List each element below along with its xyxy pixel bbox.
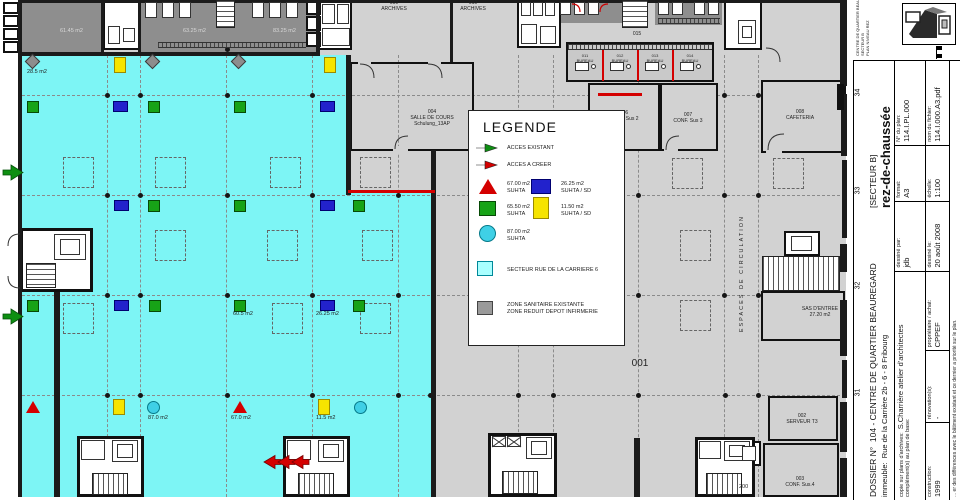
logo-zone: CENTRE DE QUARTIER BEAUREGARD - FRIBOURG… — [853, 0, 960, 60]
area-label: 67.0 m2 — [231, 415, 251, 421]
legend-item-label: SECTEUR RUE DE LA CARRIERE 6 — [507, 267, 598, 274]
room-label: SAS D'ENTREE27.20 m2 — [796, 307, 844, 319]
marker-green — [234, 200, 246, 212]
marker-green — [27, 300, 39, 312]
access-existing-arrow-icon — [3, 165, 23, 324]
title-block-footnote: ... er des différences avec le bâtiment … — [950, 61, 960, 500]
marker-green — [149, 300, 161, 312]
red-door-mark — [572, 4, 580, 12]
legend-item-label: ACCES EXISTANT — [507, 145, 554, 152]
marker-yellow — [318, 399, 330, 415]
square-cyan-icon — [477, 261, 493, 276]
red-door-mark — [600, 4, 608, 12]
room-label: 003CONF. Sus.4 — [778, 477, 822, 489]
room-label: 012BUREAU — [604, 54, 636, 63]
immeuble-label: immeuble: — [880, 462, 889, 497]
immeuble-value: Rue de la Carrière 2b - 6 - 8 Fribourg — [880, 335, 889, 458]
marker-triangle — [233, 401, 247, 413]
title-block: DOSSIER N° 104 - CENTRE DE QUARTIER BEAU… — [853, 60, 960, 500]
marker-blue — [114, 300, 129, 311]
legend-item-label: 87.00 m2SUHTA — [507, 229, 530, 242]
plan-no-value: 114.I.PL.000 — [902, 64, 911, 142]
room-label: 011BUREAU — [569, 54, 601, 63]
grid-number: 33 — [855, 183, 862, 199]
proprietaire-value: CPPEF — [933, 275, 942, 348]
marker-triangle — [26, 401, 40, 413]
dossier-label: DOSSIER N° — [868, 447, 878, 497]
marker-green — [234, 101, 246, 113]
room-label: 010ARCHIVES — [453, 1, 493, 13]
secteur-tag: [SECTEUR B] — [868, 64, 878, 208]
square-gray-icon — [477, 301, 493, 315]
fichier-value: 114.I.000.A3.pdf — [933, 64, 942, 142]
area-label: 63.25 m2 — [183, 28, 206, 34]
area-label: 83.25 m2 — [273, 28, 296, 34]
room-label: 013BUREAU — [639, 54, 671, 63]
legend-title: LEGENDE — [483, 119, 557, 135]
grid-number: 32 — [855, 278, 862, 294]
room-label: 004SALLE DE COURSSchulung_13AP — [404, 110, 460, 127]
echelle-value: 1:100 — [933, 149, 942, 198]
legend-item-label: ZONE SANITAIRE EXISTANTEZONE REDUIT DEPO… — [507, 302, 598, 315]
area-label: 200 — [739, 484, 748, 490]
dessine-le-value: 20 août 2008 — [933, 205, 942, 268]
square-blue-icon — [531, 179, 551, 194]
area-label: 11.5 m2 — [316, 415, 335, 421]
circle-cyan-icon — [479, 225, 496, 242]
marker-green — [353, 300, 365, 312]
room-label: 009ARCHIVES — [374, 1, 414, 13]
area-label: 61.45 m2 — [60, 28, 83, 34]
square-yellow-icon — [533, 197, 549, 219]
marker-circle — [354, 401, 367, 414]
legend-panel: LEGENDE ACCES EXISTANTACCES A CREER67.00… — [468, 110, 625, 346]
dessine-par-value: jdb — [902, 205, 911, 268]
area-label: 60.5 m2 — [233, 311, 253, 317]
copie-value: S.Charrière atelier d'architectes — [896, 324, 905, 429]
room-label: ESPACES DE CIRCULATION — [739, 236, 745, 332]
arrow-red-icon — [475, 158, 499, 177]
area-label: 28.5 m2 — [27, 69, 47, 75]
square-green-icon — [479, 201, 496, 216]
marker-blue — [114, 200, 129, 211]
triangle-red-icon — [479, 179, 497, 194]
legend-item-label: 65.50 m2SUHTA — [507, 204, 530, 217]
area-label: 26.25 m2 — [316, 311, 339, 317]
room-label: 002SERVEUR T3 — [780, 414, 824, 426]
architect-logo — [902, 3, 956, 45]
renovation-value: - — [933, 354, 942, 419]
room-label: 007CONF. Sus 3 — [666, 113, 710, 125]
complement-label: complément(s) au plan de base: — [905, 275, 911, 497]
legend-item-label: ACCES A CREER — [507, 162, 551, 169]
marker-blue — [113, 101, 128, 112]
marker-green — [27, 101, 39, 113]
floor-plan-sheet: LEGENDE ACCES EXISTANTACCES A CREER67.00… — [0, 0, 960, 500]
scale-ruler-icon — [936, 46, 942, 59]
room-label: 015 — [627, 32, 647, 38]
room-label: 001 — [626, 358, 654, 370]
marker-yellow — [324, 57, 336, 73]
legend-item-label: 11.50 m2SUHTA / SD — [561, 204, 591, 217]
marker-green — [148, 101, 160, 113]
floor-name: rez-de-chaussée — [878, 64, 893, 208]
grid-number: 34 — [855, 85, 862, 101]
marker-yellow — [113, 399, 125, 415]
marker-circle — [147, 401, 160, 414]
room-label: 008CAFETERIA — [778, 110, 822, 122]
format-value: A3 — [902, 149, 911, 198]
grid-number: 31 — [855, 385, 862, 401]
construction-value: 1999 — [933, 426, 942, 497]
marker-green — [353, 200, 365, 212]
access-to-create-arrow-icon — [264, 456, 309, 469]
marker-blue — [320, 101, 335, 112]
room-label: 014BUREAU — [674, 54, 706, 63]
project-name-block: CENTRE DE QUARTIER BEAUREGARD - FRIBOURG… — [855, 2, 870, 56]
legend-item-label: 26.25 m2SUHTA / SD — [561, 181, 591, 194]
area-label: 87.0 m2 — [148, 415, 168, 421]
marker-green — [148, 200, 160, 212]
legend-item-label: 67.00 m2SUHTA — [507, 181, 530, 194]
marker-blue — [320, 200, 335, 211]
marker-yellow — [114, 57, 126, 73]
marker-blue — [320, 300, 335, 311]
dossier-number: 104 - CENTRE DE QUARTIER BEAUREGARD — [868, 263, 878, 442]
